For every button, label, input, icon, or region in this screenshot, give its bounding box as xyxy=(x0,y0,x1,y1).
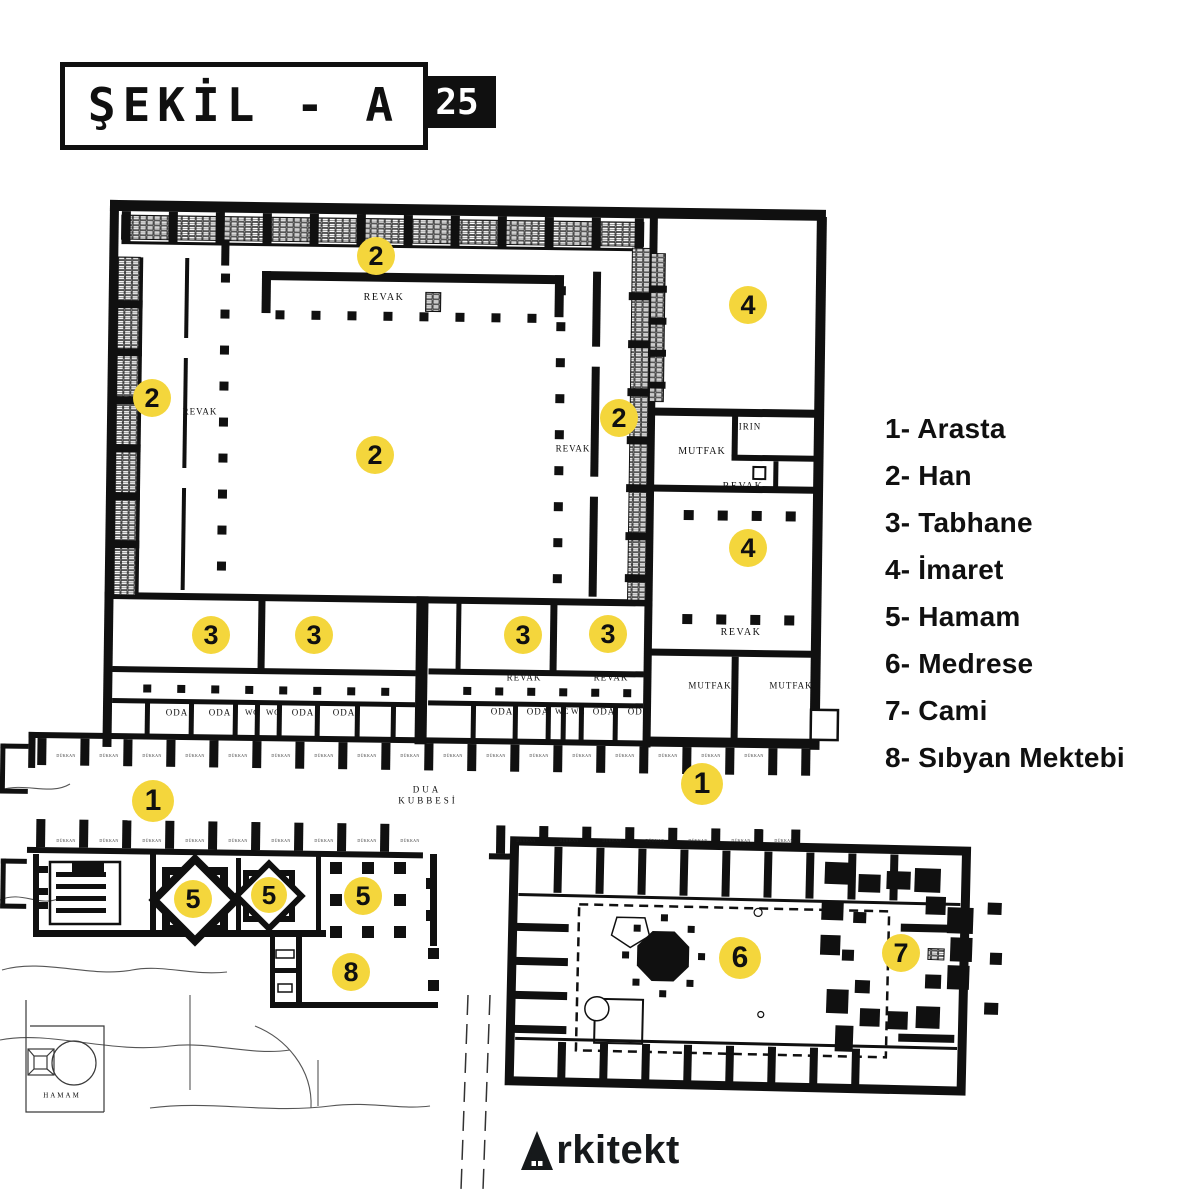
brand-text: rkitekt xyxy=(556,1128,680,1173)
room-label-oda: ODA xyxy=(593,708,616,717)
plan-marker-3: 3 xyxy=(295,616,333,654)
plan-marker-1: 1 xyxy=(132,780,174,822)
shop-label-dukkan: DÜKKAN xyxy=(400,839,419,843)
room-label-wc: WC xyxy=(571,708,585,716)
shop-label-dukkan: DÜKKAN xyxy=(185,754,204,758)
legend-item-1: 1- Arasta xyxy=(885,405,1125,452)
shop-label-dukkan: DÜKKAN xyxy=(572,754,591,758)
shop-label-dukkan: DÜKKAN xyxy=(99,839,118,843)
plan-marker-3: 3 xyxy=(504,616,542,654)
shop-label-dukkan: DÜKKAN xyxy=(443,754,462,758)
hamam-block xyxy=(33,854,439,1008)
room-label-wc: WC xyxy=(555,708,569,716)
shop-label-dukkan: DÜKKAN xyxy=(400,754,419,758)
legend-item-2: 2- Han xyxy=(885,452,1125,499)
shop-label-dukkan: DÜKKAN xyxy=(56,754,75,758)
legend-item-4: 4- İmaret xyxy=(885,546,1125,593)
shop-label-dukkan: DÜKKAN xyxy=(731,839,750,843)
room-label-revak: REVAK xyxy=(721,628,762,638)
room-label-revak: REVAK xyxy=(183,408,218,417)
plan-marker-4: 4 xyxy=(729,286,767,324)
shop-label-dukkan: DÜKKAN xyxy=(228,754,247,758)
room-label-dua: DUA xyxy=(413,786,442,795)
room-label-revak: REVAK xyxy=(556,445,591,454)
plan-marker-2: 2 xyxy=(357,237,395,275)
plan-marker-5: 5 xyxy=(174,880,212,918)
figure-page: ŞEKİL - A 25 xyxy=(0,0,1200,1200)
legend-item-3: 3- Tabhane xyxy=(885,499,1125,546)
legend-item-6: 6- Medrese xyxy=(885,640,1125,687)
shop-label-dukkan: DÜKKAN xyxy=(688,839,707,843)
plan-marker-2: 2 xyxy=(133,379,171,417)
room-label-oda: ODA xyxy=(333,709,356,718)
room-label-revak: REVAK xyxy=(364,293,405,303)
room-label-wc: WC xyxy=(266,709,280,717)
shop-label-dukkan: DÜKKAN xyxy=(314,839,333,843)
room-label-oda: ODA xyxy=(628,708,651,717)
room-label-oda: ODA xyxy=(292,709,315,718)
figure-title-box: ŞEKİL - A xyxy=(60,62,428,150)
room-label-mutfak: MUTFAK xyxy=(688,682,731,691)
han-imaret-tabhane-arasta xyxy=(0,199,845,921)
figure-title: ŞEKİL - A xyxy=(88,78,400,132)
shop-label-dukkan: DÜKKAN xyxy=(271,754,290,758)
shop-label-dukkan: DÜKKAN xyxy=(658,754,677,758)
plan-marker-1: 1 xyxy=(681,763,723,805)
shop-label-dukkan: DÜKKAN xyxy=(559,839,578,843)
room-label-revak: REVAK xyxy=(594,674,629,683)
room-label-wc: WC xyxy=(245,709,259,717)
figure-number-badge: 25 xyxy=(418,76,496,128)
shop-label-dukkan: DÜKKAN xyxy=(314,754,333,758)
room-label-revak: REVAK xyxy=(723,482,764,492)
plan-marker-7: 7 xyxy=(882,934,920,972)
legend-item-5: 5- Hamam xyxy=(885,593,1125,640)
room-label-oda: ODA xyxy=(166,709,189,718)
plan-marker-4: 4 xyxy=(729,529,767,567)
plan-marker-6: 6 xyxy=(719,937,761,979)
shop-label-dukkan: DÜKKAN xyxy=(99,754,118,758)
shop-label-dukkan: DÜKKAN xyxy=(357,754,376,758)
room-label-oda: ODA xyxy=(527,708,550,717)
shop-label-dukkan: DÜKKAN xyxy=(516,839,535,843)
shop-label-dukkan: DÜKKAN xyxy=(142,754,161,758)
room-label-mutfak: MUTFAK xyxy=(769,682,812,691)
room-label-hamam: HAMAM xyxy=(43,1093,81,1100)
shop-label-dukkan: DÜKKAN xyxy=(185,839,204,843)
room-label-kubbesi̇: KUBBESİ xyxy=(398,797,458,806)
plan-marker-2: 2 xyxy=(600,399,638,437)
room-label-oda: ODA xyxy=(209,709,232,718)
shop-label-dukkan: DÜKKAN xyxy=(701,754,720,758)
room-label-firin: FIRIN xyxy=(733,423,762,432)
shop-label-dukkan: DÜKKAN xyxy=(228,839,247,843)
legend-item-8: 8- Sıbyan Mektebi xyxy=(885,734,1125,781)
legend: 1- Arasta2- Han3- Tabhane4- İmaret5- Ham… xyxy=(885,405,1125,781)
plan-marker-8: 8 xyxy=(332,953,370,991)
shop-label-dukkan: DÜKKAN xyxy=(486,754,505,758)
plan-marker-3: 3 xyxy=(589,615,627,653)
plan-marker-5: 5 xyxy=(251,877,287,913)
plan-marker-2: 2 xyxy=(356,436,394,474)
shop-label-dukkan: DÜKKAN xyxy=(774,839,793,843)
shop-label-dukkan: DÜKKAN xyxy=(645,839,664,843)
room-label-oda: ODA xyxy=(491,708,514,717)
legend-item-7: 7- Cami xyxy=(885,687,1125,734)
shop-label-dukkan: DÜKKAN xyxy=(357,839,376,843)
plan-marker-3: 3 xyxy=(192,616,230,654)
shop-label-dukkan: DÜKKAN xyxy=(602,839,621,843)
shop-label-dukkan: DÜKKAN xyxy=(142,839,161,843)
shop-label-dukkan: DÜKKAN xyxy=(56,839,75,843)
shop-label-dukkan: DÜKKAN xyxy=(271,839,290,843)
room-label-mutfak: MUTFAK xyxy=(678,447,725,457)
brand-logo: rkitekt xyxy=(0,1128,1200,1173)
shop-label-dukkan: DÜKKAN xyxy=(744,754,763,758)
shop-label-dukkan: DÜKKAN xyxy=(615,754,634,758)
shop-label-dukkan: DÜKKAN xyxy=(529,754,548,758)
plan-marker-5: 5 xyxy=(344,877,382,915)
room-label-revak: REVAK xyxy=(507,674,542,683)
brand-house-a-icon xyxy=(520,1131,554,1171)
